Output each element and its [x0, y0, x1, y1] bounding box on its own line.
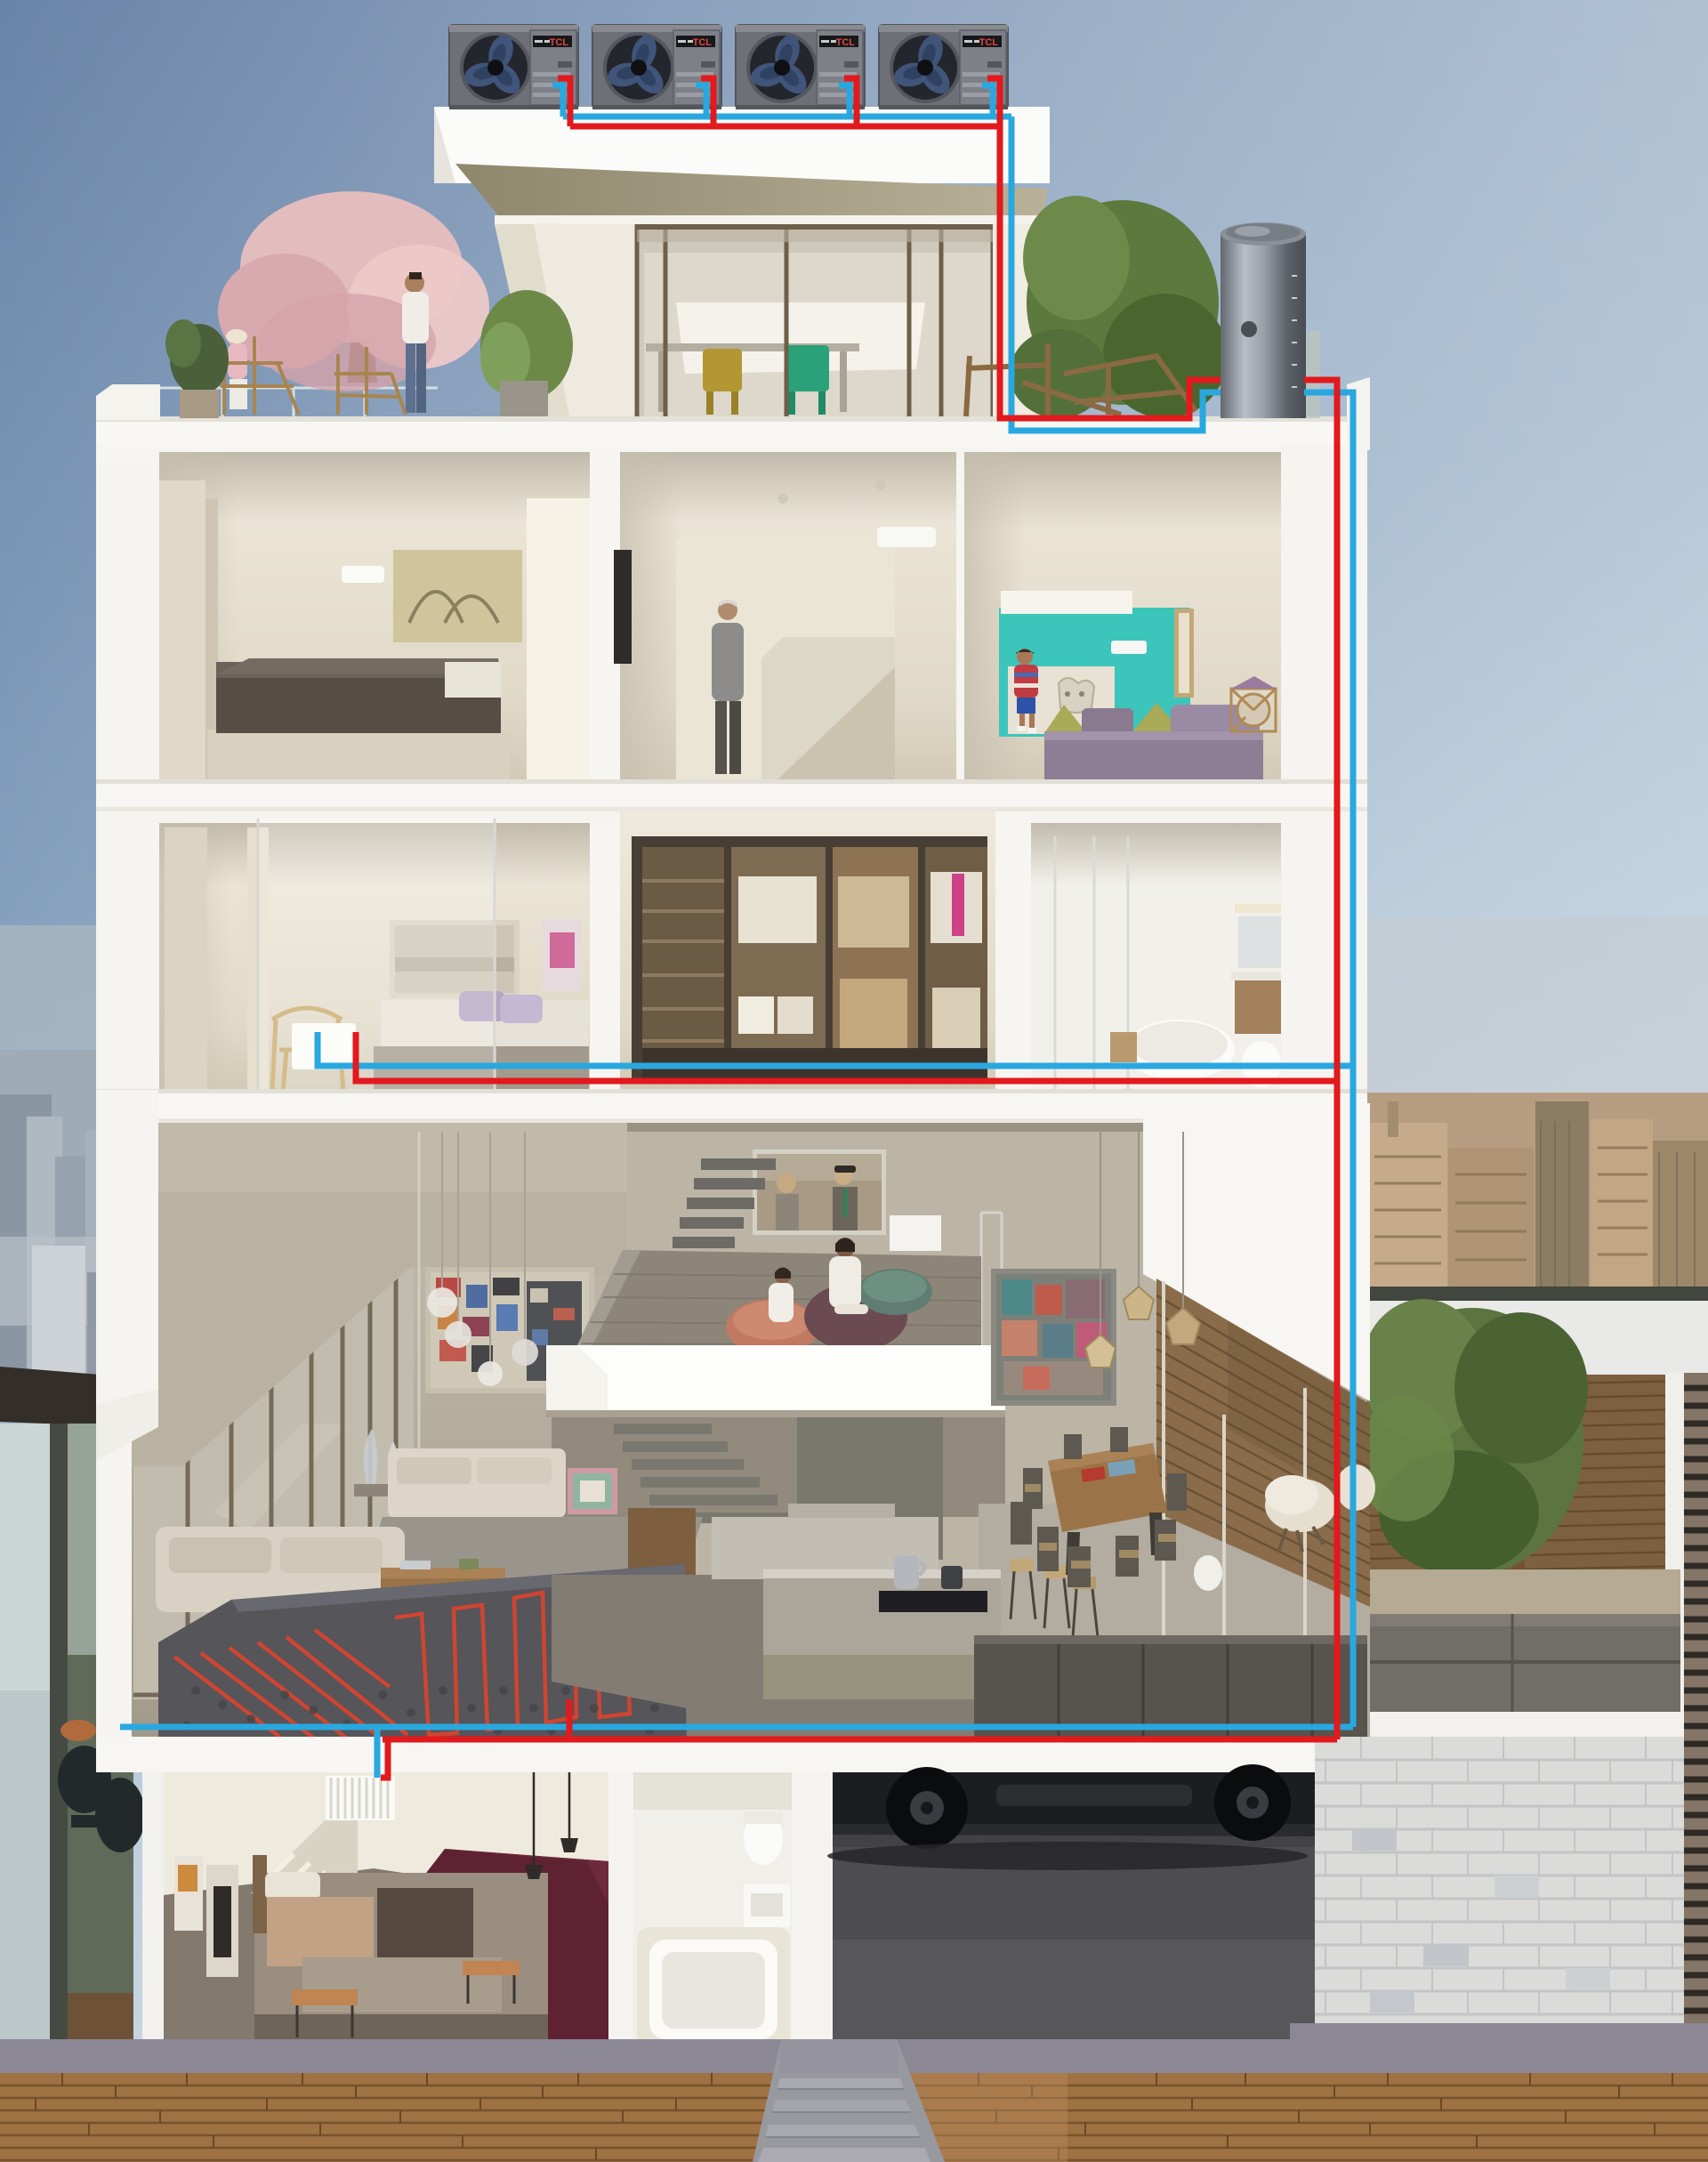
svg-text:TCL: TCL: [979, 37, 999, 48]
svg-text:TCL: TCL: [550, 37, 569, 48]
svg-text:TCL: TCL: [693, 37, 713, 48]
svg-text:TCL: TCL: [836, 37, 856, 48]
